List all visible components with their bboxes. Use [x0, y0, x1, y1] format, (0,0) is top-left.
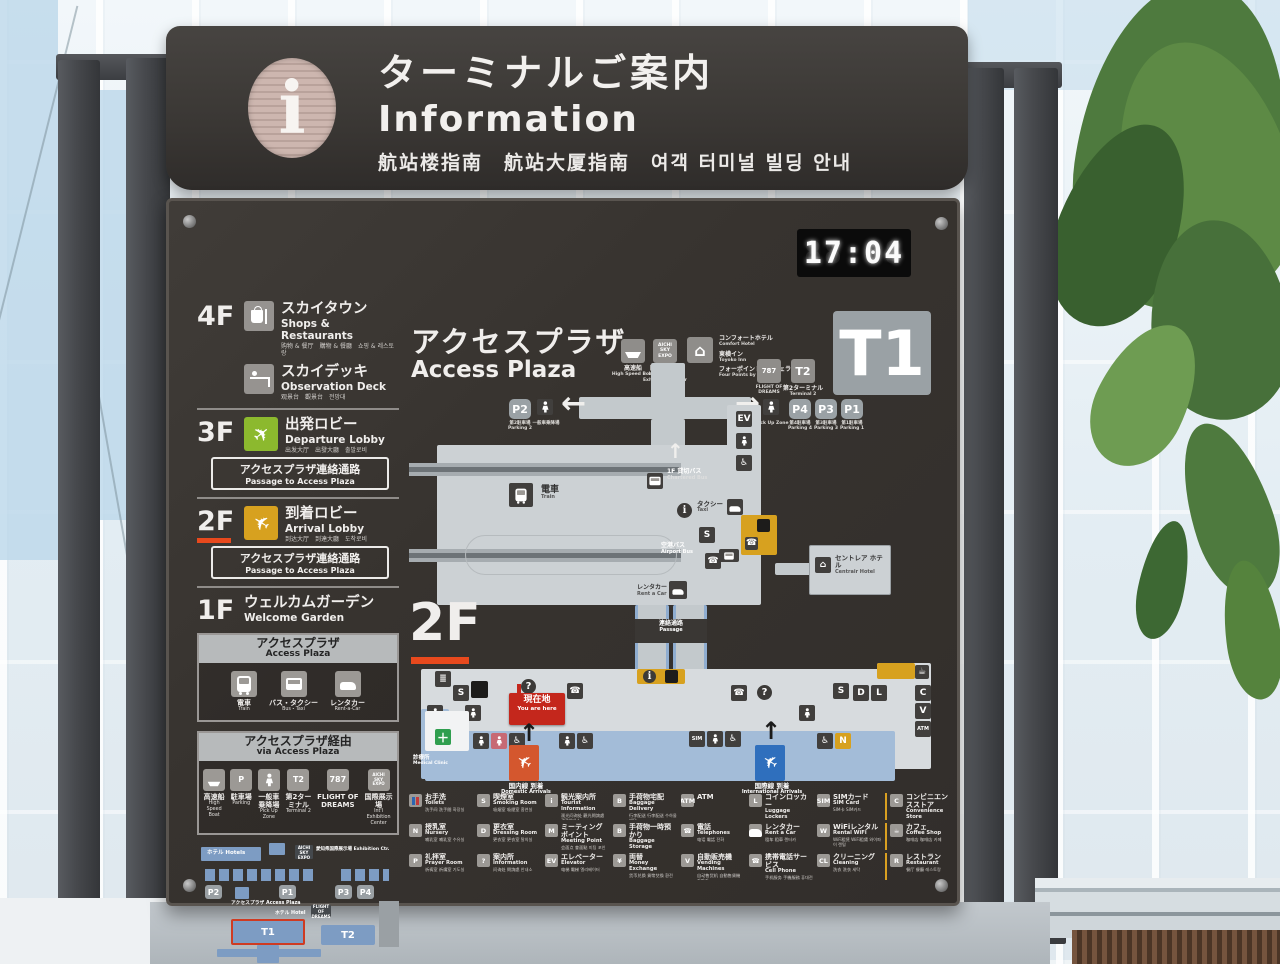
p1-badge: P1: [841, 399, 863, 419]
escalator-icon: ≣: [435, 671, 451, 687]
legend-item: RレストランRestaurant餐厅 餐廳 레스토랑: [885, 853, 949, 880]
transport-label-jp: 第2ターミナル: [285, 793, 311, 809]
corridor-shape: [651, 363, 685, 401]
t2-icon: T2: [287, 769, 309, 791]
p3-badge: P3: [815, 399, 837, 419]
toilet-icon: [559, 733, 575, 749]
transport-item: T2第2ターミナルTerminal 2: [285, 769, 311, 826]
frame-post: [1014, 68, 1058, 938]
coffee-icon: ☕: [915, 665, 929, 679]
exchange-icon: ¥: [613, 854, 626, 867]
minimap-buildings: [341, 869, 389, 881]
transport-label-en: Train: [231, 707, 257, 713]
expo-icon: AICHISKYEXPO: [368, 769, 390, 791]
shops-restaurants-icon: [244, 301, 274, 331]
question-icon: ?: [477, 854, 490, 867]
transport-label-en: Bus・Taxi: [269, 707, 318, 713]
floor-label: 4F: [197, 301, 237, 401]
directory-item: ✈ 到着ロビー Arrival Lobby 到达大厅 到達大廳 도착로비: [244, 506, 399, 543]
legend-label-en: Money Exchange: [629, 861, 677, 873]
minimap-access-plaza-label: アクセスプラザ Access Plaza: [231, 901, 300, 907]
smoking-icon: S: [833, 683, 849, 699]
dressing-icon: D: [853, 685, 869, 701]
access-plaza-box: アクセスプラザ Access Plaza 電車Trainバス・タクシーBus・T…: [197, 633, 399, 722]
item-jp: 到着ロビー: [285, 506, 367, 523]
vent-grille: [1072, 930, 1280, 964]
car-icon: [749, 824, 762, 837]
item-jp: ウェルカムガーデン: [244, 595, 374, 612]
legend-label-en: Vending Machines: [697, 861, 745, 873]
legend-item: B手荷物宅配Baggage Delivery行李配送 行李配送 수하물 배달: [613, 793, 677, 820]
legend-item: N授乳室Nursery哺乳室 哺乳室 수유실: [409, 823, 473, 850]
observation-deck-icon: [244, 364, 274, 394]
item-sub: 观景台 觀景台 전망대: [281, 394, 386, 401]
floor-label: 3F: [197, 417, 237, 454]
toilet-icon: [473, 733, 489, 749]
minimap-p4: P4: [357, 885, 374, 899]
railing: [1035, 878, 1280, 938]
hotel-icon: ⌂: [687, 337, 713, 363]
legend-label-jp: コンビニエンスストア: [906, 793, 949, 809]
item-en: Observation Deck: [281, 381, 386, 393]
terminal-map: アクセスプラザ Access Plaza T1 高速船High Speed Bo…: [409, 313, 951, 905]
smoking-icon: S: [699, 527, 715, 543]
atm-icon: ATM: [915, 721, 931, 737]
divider: [197, 586, 399, 588]
floor-label-underline: [411, 657, 469, 664]
header-title-jp: ターミナルご案内: [378, 42, 852, 97]
transport-label-en: Rent-a-Car: [330, 707, 365, 713]
floor-2f: 2F ✈ 到着ロビー Arrival Lobby 到达大厅 到達大廳 도착로비: [197, 506, 399, 543]
floor-label: 1F: [197, 595, 237, 624]
phone-icon: ☎: [745, 537, 758, 550]
legend-item: CLクリーニングCleaning洗衣 洗衣 세탁: [817, 853, 881, 880]
directory-item: ✈ 出発ロビー Departure Lobby 出发大厅 出發大廳 출발로비: [244, 417, 399, 454]
item-en: Arrival Lobby: [285, 523, 367, 535]
train-icon: [231, 671, 257, 697]
shop-icon: [757, 519, 770, 532]
floor-label-highlighted: 2F: [197, 506, 237, 543]
bag-icon: B: [613, 794, 626, 807]
legend-label-sub: 观光问询处 觀光問詢處 관광안내소: [561, 813, 609, 820]
wheelchair-icon: ♿: [725, 731, 741, 747]
item-sub: 到达大厅 到達大廳 도착로비: [285, 536, 367, 543]
divider: [197, 497, 399, 499]
legend-label-en: Baggage Storage: [629, 839, 677, 850]
787-icon: 787: [327, 769, 349, 791]
legend-label-en: Convenience Store: [906, 809, 949, 820]
map-title-jp: アクセスプラザ: [411, 319, 627, 361]
information-icon: i: [677, 503, 692, 518]
item-en: Welcome Garden: [244, 612, 374, 624]
legend-item: ¥両替Money Exchange货币兑换 貨幣兌換 환전: [613, 853, 677, 880]
phone-icon: ☎: [749, 854, 762, 867]
legend-label-en: Luggage Lockers: [765, 809, 813, 820]
legend-item: お手洗Toilets洗手间 洗手間 화장실: [409, 793, 473, 820]
legend: お手洗Toilets洗手间 洗手間 화장실S喫煙室Smoking Room吸烟室…: [409, 793, 949, 880]
toilet-icon: [736, 433, 752, 449]
sim-icon: SIM: [817, 794, 830, 807]
legend-item: SIMSIMカードSIM CardSIM卡 SIM카드: [817, 793, 881, 820]
minimap-t2: T2: [321, 925, 375, 945]
legend-label-jp: コインロッカー: [765, 793, 813, 809]
legend-item: S喫煙室Smoking Room吸烟室 吸煙室 흡연실: [477, 793, 541, 820]
passage-jp: アクセスプラザ連絡通路: [213, 550, 387, 566]
item-jp: スカイタウン: [281, 301, 399, 318]
legend-label-sub: 洗手间 洗手間 화장실: [425, 807, 464, 812]
transport-label-jp: 国際展示場: [364, 793, 393, 809]
legend-label-sub: WiFi租赁 WiFi租賃 와이파이 렌털: [833, 837, 881, 847]
legend-label-sub: 问询处 問詢處 안내소: [493, 867, 532, 872]
transport-label-jp: 電車: [231, 699, 257, 707]
sim-icon: SIM: [689, 731, 705, 747]
corridor-shape: [579, 397, 751, 419]
locker-icon: L: [871, 685, 887, 701]
legend-item: ?案内所Information问询处 問詢處 안내소: [477, 853, 541, 880]
item-jp: スカイデッキ: [281, 364, 386, 381]
header-subtitle: 航站楼指南 航站大厦指南 여객 터미널 빌딩 안내: [378, 148, 852, 175]
directory-item: スカイデッキ Observation Deck 观景台 觀景台 전망대: [244, 364, 399, 401]
legend-label-sub: 更衣室 更衣室 탈의실: [493, 837, 537, 842]
legend-item: i観光案内所Tourist Information观光问询处 觀光問詢處 관광안…: [545, 793, 609, 820]
parking-icon: P: [230, 769, 252, 791]
vending-icon: V: [681, 854, 694, 867]
toilet-icon: [799, 705, 815, 721]
legend-label-sub: SIM卡 SIM카드: [833, 807, 869, 812]
floor-1f: 1F ウェルカムガーデン Welcome Garden: [197, 595, 399, 624]
question-icon: ?: [521, 679, 536, 694]
legend-item: B手荷物一時預かりBaggage Storage行李寄存 行李寄存 수하물 보관: [613, 823, 677, 850]
smoke-icon: S: [477, 794, 490, 807]
legend-label-sub: 咖啡店 咖啡店 카페: [906, 837, 942, 842]
frame-post: [964, 68, 1004, 938]
smoking-icon: S: [453, 685, 469, 701]
clock-ghost-segments: 88:88: [804, 236, 904, 271]
legend-label-jp: 手荷物一時預かり: [629, 823, 677, 839]
shop-icon: C: [915, 685, 931, 701]
information-icon: i: [643, 670, 656, 683]
international-arrivals-icon: ✈: [755, 745, 785, 781]
floor-4f: 4F スカイタウン Shops & Restaurants 购物 & 餐厅 購物…: [197, 301, 399, 401]
legend-item: ATMATM: [681, 793, 745, 820]
led-clock: 88:88 17:04: [797, 229, 911, 277]
passage-en: Passage to Access Plaza: [213, 477, 387, 486]
left-arrow-icon: ←: [561, 389, 586, 419]
wc-icon: [409, 794, 422, 807]
cafe-block: [877, 663, 915, 679]
t1-badge: T1: [833, 311, 931, 395]
info-board: 88:88 17:04 4F スカイタウン Shops & Restaurant…: [166, 198, 960, 906]
pickup-walk-icon: [537, 399, 553, 415]
map-title-en: Access Plaza: [411, 357, 576, 383]
legend-item: MミーティングポイントMeeting Point会面点 會面點 미팅 포인트: [545, 823, 609, 850]
minimap-hotel-label: ホテル Hotel: [275, 911, 306, 917]
item-sub: 购物 & 餐厅 購物 & 餐廳 쇼핑 & 레스토랑: [281, 343, 399, 357]
medical-cross-icon: ＋: [435, 729, 451, 745]
legend-label-sub: 哺乳室 哺乳室 수유실: [425, 837, 464, 842]
screw-icon: [935, 217, 948, 230]
minimap-expo-badge: AICHI SKY EXPO: [295, 845, 313, 859]
high-speed-boat-icon: [621, 339, 645, 363]
transport-item: レンタカーRent-a-Car: [330, 671, 365, 713]
transport-label-en: High Speed Boat: [203, 801, 225, 818]
transport-item: 一般車乗降場Pick Up Zone: [257, 769, 280, 826]
pray-icon: P: [409, 854, 422, 867]
floor: [0, 898, 170, 964]
minimap-future-pad: [379, 901, 399, 947]
legend-label-en: Baggage Delivery: [629, 801, 677, 813]
up-arrow-icon: ↑: [761, 719, 781, 743]
legend-item: ☎電話Telephones电话 電話 전화: [681, 823, 745, 850]
wheelchair-icon: ♿: [577, 733, 593, 749]
up-arrow-icon: ↑: [667, 441, 684, 461]
vending-icon: V: [915, 703, 931, 719]
legend-label-jp: ATM: [697, 793, 714, 801]
transport-item: 787FLIGHT OF DREAMS: [316, 769, 359, 826]
shop-icon: [471, 681, 488, 698]
minimap-t1: T1: [231, 919, 305, 945]
box-title-en: via Access Plaza: [199, 748, 397, 758]
locker-icon: L: [749, 794, 762, 807]
box-title-en: Access Plaza: [199, 650, 397, 660]
via-access-plaza-box: アクセスプラザ経由 via Access Plaza 高速船High Speed…: [197, 731, 399, 835]
storage-icon: B: [613, 824, 626, 837]
passage-jp: アクセスプラザ連絡通路: [213, 461, 387, 477]
frame-post: [126, 58, 170, 940]
p4-badge: P4: [789, 399, 811, 419]
car-icon: [335, 671, 361, 697]
legend-label-sub: 吸烟室 吸煙室 흡연실: [493, 807, 537, 812]
meet-icon: M: [545, 824, 558, 837]
wheelchair-icon: ♿: [736, 455, 752, 471]
hotel-bed-icon: ⌂: [815, 557, 831, 573]
taxi-icon: [727, 499, 743, 515]
transport-item: バス・タクシーBus・Taxi: [269, 671, 318, 713]
header-title-en: Information: [378, 99, 852, 140]
walk-icon: [258, 769, 280, 791]
transport-label-jp: レンタカー: [330, 699, 365, 707]
header-board: i ターミナルご案内 Information 航站楼指南 航站大厦指南 여객 터…: [166, 26, 968, 190]
terminal2-icon: T2: [791, 359, 815, 383]
transport-label-jp: 一般車乗降場: [257, 793, 280, 809]
floor-directory: 4F スカイタウン Shops & Restaurants 购物 & 餐厅 購物…: [197, 301, 399, 964]
transport-item: P駐車場Parking: [230, 769, 252, 826]
legend-item: LコインロッカーLuggage Lockers投币式寄物柜 投幣式寄物櫃 코인로…: [749, 793, 813, 820]
passage-box: アクセスプラザ連絡通路 Passage to Access Plaza: [211, 546, 389, 579]
legend-item: WWiFiレンタルRental WiFiWiFi租赁 WiFi租賃 와이파이 렌…: [817, 823, 881, 850]
minimap-expo-label: 愛知県国際展示場 Exhibition Ctr.: [316, 847, 396, 852]
toilet-women-icon: [491, 733, 507, 749]
legend-item: レンタカーRent a Car租车 租車 렌터카: [749, 823, 813, 850]
transport-item: 高速船High Speed Boat: [203, 769, 225, 826]
legend-item: EVエレベーターElevator电梯 電梯 엘리베이터: [545, 853, 609, 880]
transport-label-jp: 駐車場: [230, 793, 252, 801]
phone-icon: ☎: [567, 683, 583, 699]
legend-label-sub: 电梯 電梯 엘리베이터: [561, 867, 603, 872]
question-icon: ?: [757, 685, 772, 700]
wifi-icon: W: [817, 824, 830, 837]
info-icon: i: [545, 794, 558, 807]
overview-minimap: ホテル Hotels AICHI SKY EXPO 愛知県国際展示場 Exhib…: [183, 843, 399, 964]
legend-label-jp: 携帯電話サービス: [765, 853, 813, 869]
divider: [197, 408, 399, 410]
legend-label-sub: 自动售货机 自動售貨機 자판기: [697, 873, 745, 880]
rest-icon: R: [890, 854, 903, 867]
minimap-p3: P3: [335, 885, 352, 899]
hotel-bridge: [775, 563, 813, 575]
person-icon: [707, 731, 723, 747]
legend-label-sub: 电话 電話 전화: [697, 837, 730, 842]
legend-label-sub: 餐厅 餐廳 레스토랑: [906, 867, 941, 872]
minimap-p2: P2: [205, 885, 222, 899]
flight-of-dreams-icon: 787: [757, 359, 781, 383]
store-icon: C: [890, 794, 903, 807]
passage-en: Passage to Access Plaza: [213, 566, 387, 575]
p2-badge: P2: [509, 399, 531, 419]
legend-label-sub: 货币兑换 貨幣兌換 환전: [629, 873, 677, 878]
nursery-icon: N: [409, 824, 422, 837]
boat-icon: [203, 769, 225, 791]
shop-icon: [665, 670, 678, 683]
pickup-walk-icon: [763, 399, 779, 415]
phone-icon: ☎: [731, 685, 747, 701]
photo-scene: i ターミナルご案内 Information 航站楼指南 航站大厦指南 여객 터…: [0, 0, 1280, 964]
train-icon: [509, 483, 533, 507]
floor-3f: 3F ✈ 出発ロビー Departure Lobby 出发大厅 出發大廳 출발로…: [197, 417, 399, 454]
chartered-bus-icon: [647, 473, 663, 489]
minimap-buildings: [205, 869, 313, 881]
arrival-icon: ✈: [244, 506, 278, 540]
legend-label-sub: 行李配送 行李配送 수하물 배달: [629, 813, 677, 820]
legend-label-sub: 手机服务 手機服務 휴대전화 서비스: [765, 875, 813, 880]
coffee-icon: ☕: [890, 824, 903, 837]
transport-label-en: Parking: [230, 801, 252, 807]
item-sub: 出发大厅 出發大廳 출발로비: [285, 447, 385, 454]
transport-label-jp: FLIGHT OF DREAMS: [316, 793, 359, 809]
dress-icon: D: [477, 824, 490, 837]
elevator-icon: EV: [736, 411, 752, 427]
legend-label-sub: 租车 租車 렌터카: [765, 837, 800, 842]
map-floor-label: 2F: [409, 597, 481, 649]
transport-label-jp: 高速船: [203, 793, 225, 801]
directory-item: スカイタウン Shops & Restaurants 购物 & 餐厅 購物 & …: [244, 301, 399, 357]
legend-label-sub: 会面点 會面點 미팅 포인트: [561, 845, 609, 850]
tel-icon: ☎: [681, 824, 694, 837]
minimap-hotels-label: ホテル Hotels: [207, 850, 245, 857]
transport-label-en: Int'l Exhibition Center: [364, 809, 393, 826]
minimap-p1: P1: [279, 885, 296, 899]
legend-label-sub: 洗衣 洗衣 세탁: [833, 867, 875, 872]
item-en: Shops & Restaurants: [281, 318, 399, 342]
item-en: Departure Lobby: [285, 434, 385, 446]
aichi-sky-expo-icon: AICHI SKY EXPO: [653, 339, 677, 363]
legend-item: P礼拝室Prayer Room祈祷室 祈禱室 기도실: [409, 853, 473, 880]
bus-icon: [281, 671, 307, 697]
legend-label-sub: 祈祷室 祈禱室 기도실: [425, 867, 464, 872]
platform-outline: [465, 535, 677, 575]
departure-icon: ✈: [244, 417, 278, 451]
frame-post: [58, 60, 100, 940]
rail-track: [409, 463, 681, 476]
legend-label-jp: ミーティングポイント: [561, 823, 609, 839]
airport-bus-icon: [719, 549, 739, 562]
legend-label-en: Tourist Information: [561, 801, 609, 813]
legend-item: ☎携帯電話サービスCell Phone手机服务 手機服務 휴대전화 서비스: [749, 853, 813, 880]
legend-item: ☕カフェCoffee Shop咖啡店 咖啡店 카페: [885, 823, 949, 850]
transport-item: AICHISKYEXPO国際展示場Int'l Exhibition Center: [364, 769, 393, 826]
legend-item: V自動販売機Vending Machines自动售货机 自動售貨機 자판기: [681, 853, 745, 880]
baby-icon: N: [835, 733, 851, 749]
legend-item: CコンビニエンスストアConvenience Store便利店 便利商店 편의점: [885, 793, 949, 820]
atm-icon: ATM: [681, 794, 694, 807]
elev-icon: EV: [545, 854, 558, 867]
transport-item: 電車Train: [231, 671, 257, 713]
directory-item: ウェルカムガーデン Welcome Garden: [244, 595, 399, 624]
passage-box: アクセスプラザ連絡通路 Passage to Access Plaza: [211, 457, 389, 490]
screw-icon: [183, 215, 196, 228]
minimap-fod-label: FLIGHT OF DREAMS: [311, 905, 331, 917]
transport-label-en: Terminal 2: [285, 809, 311, 815]
legend-item: D更衣室Dressing Room更衣室 更衣室 탈의실: [477, 823, 541, 850]
wheelchair-icon: ♿: [817, 733, 833, 749]
info-icon: i: [248, 58, 336, 158]
transport-label-en: Pick Up Zone: [257, 809, 280, 821]
clean-icon: CL: [817, 854, 830, 867]
transport-label-jp: バス・タクシー: [269, 699, 318, 707]
item-jp: 出発ロビー: [285, 417, 385, 434]
domestic-arrivals-icon: ✈: [509, 745, 539, 781]
rentacar-icon: [669, 581, 687, 599]
